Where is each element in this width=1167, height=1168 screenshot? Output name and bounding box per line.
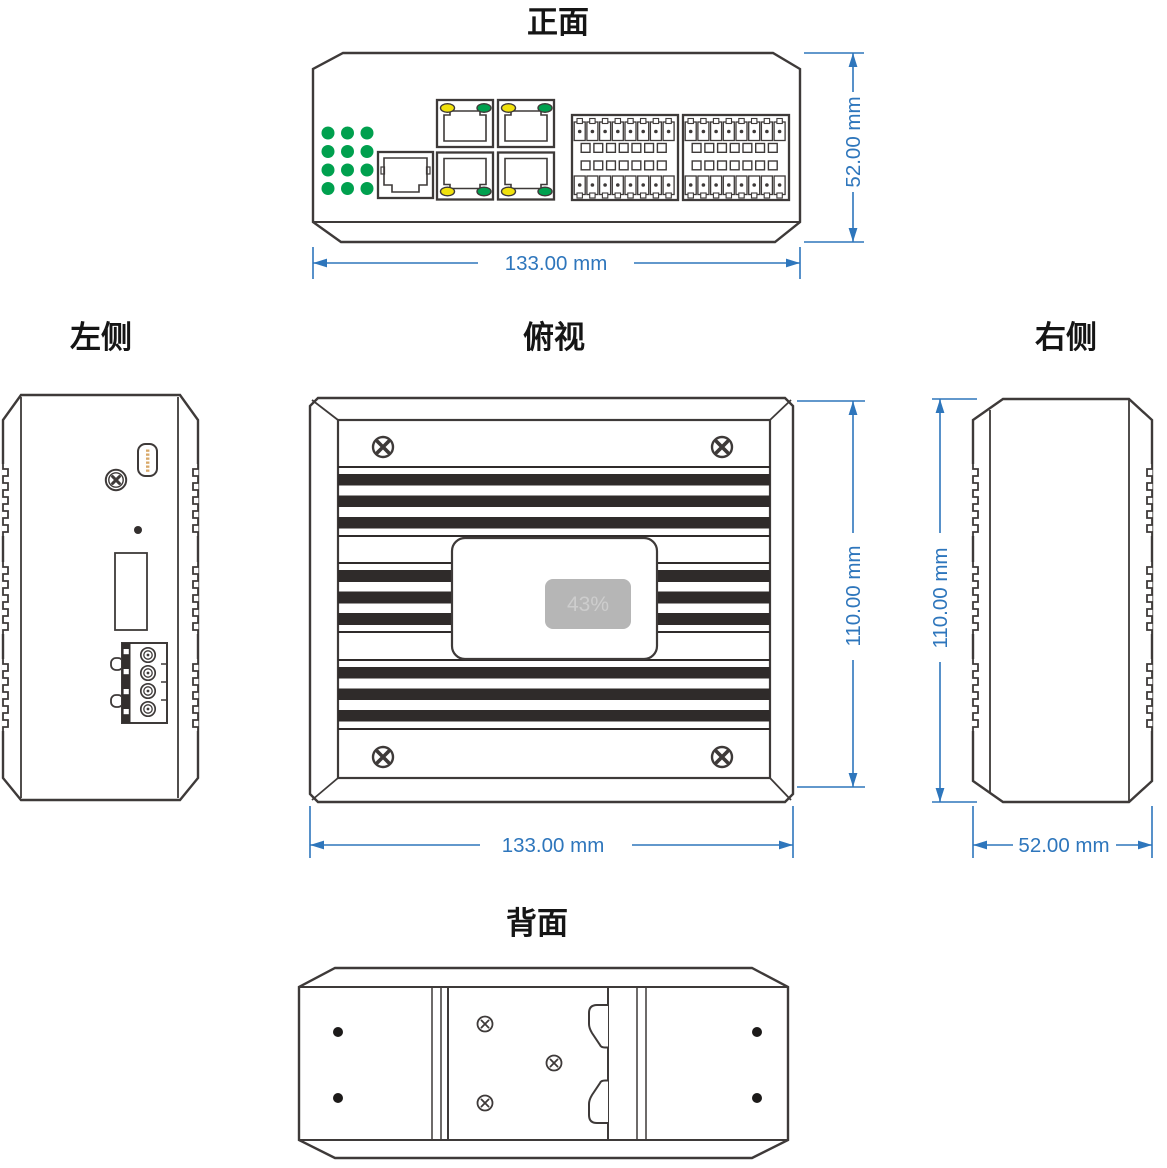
led-indicator-grid <box>322 127 374 196</box>
left-side-view: 左侧 <box>2 320 199 800</box>
right-width-dimension: 52.00 mm <box>973 806 1152 858</box>
terminal-block <box>683 115 789 200</box>
heatsink-fins <box>2 464 199 731</box>
heatsink-fins <box>972 464 1153 731</box>
din-rail-clip <box>589 1005 608 1048</box>
screw-icon <box>478 1017 493 1032</box>
back-enclosure-outline <box>299 968 788 1158</box>
rj45-console-port <box>378 152 433 198</box>
device-views-drawing: 正面 133.00 mm <box>0 0 1167 1168</box>
left-side-title: 左侧 <box>70 320 132 355</box>
sim-card-slot <box>115 553 147 630</box>
screw-icon <box>373 437 393 457</box>
din-rail-bracket <box>432 987 646 1140</box>
ethernet-ports <box>437 100 554 200</box>
screw-icon <box>712 437 732 457</box>
top-view-title: 俯视 <box>523 320 585 355</box>
wear-badge-text: 43% <box>567 593 609 616</box>
back-view-title: 背面 <box>506 906 568 941</box>
antenna-connector <box>106 470 126 490</box>
front-view-title: 正面 <box>527 5 589 40</box>
top-height-dimension: 110.00 mm <box>797 401 865 787</box>
top-height-label: 110.00 mm <box>842 545 865 646</box>
ethernet-port <box>498 153 554 200</box>
product-label: 43% <box>452 538 657 659</box>
right-side-view: 右侧 110.00 mm 52.00 mm <box>929 320 1152 858</box>
left-enclosure-outline <box>3 395 198 800</box>
terminal-block <box>572 115 678 200</box>
back-view: 背面 <box>299 906 788 1158</box>
ethernet-port <box>437 153 493 200</box>
ethernet-port <box>437 100 493 147</box>
right-enclosure-outline <box>973 399 1152 802</box>
front-height-dimension: 52.00 mm <box>804 53 865 242</box>
screw-icon <box>712 747 732 767</box>
top-view: 俯视 43% <box>310 320 865 858</box>
top-width-label: 133.00 mm <box>502 834 605 857</box>
front-width-label: 133.00 mm <box>505 252 608 275</box>
right-side-title: 右侧 <box>1035 320 1097 355</box>
screw-icon <box>478 1096 493 1111</box>
screw-icon <box>373 747 393 767</box>
front-width-dimension: 133.00 mm <box>313 247 800 279</box>
engineering-drawing-page: 正面 133.00 mm <box>0 0 1167 1168</box>
power-terminal-block <box>111 643 167 723</box>
front-height-label: 52.00 mm <box>842 96 865 187</box>
right-width-label: 52.00 mm <box>1018 834 1109 857</box>
front-view: 正面 133.00 mm <box>313 5 865 279</box>
right-height-dimension: 110.00 mm <box>929 399 977 802</box>
screw-icon <box>547 1056 562 1071</box>
right-height-label: 110.00 mm <box>929 547 952 648</box>
reset-hole <box>134 526 142 534</box>
ethernet-port <box>498 100 554 147</box>
top-width-dimension: 133.00 mm <box>310 806 793 858</box>
din-rail-clip <box>589 1081 608 1124</box>
usb-port <box>138 444 157 476</box>
